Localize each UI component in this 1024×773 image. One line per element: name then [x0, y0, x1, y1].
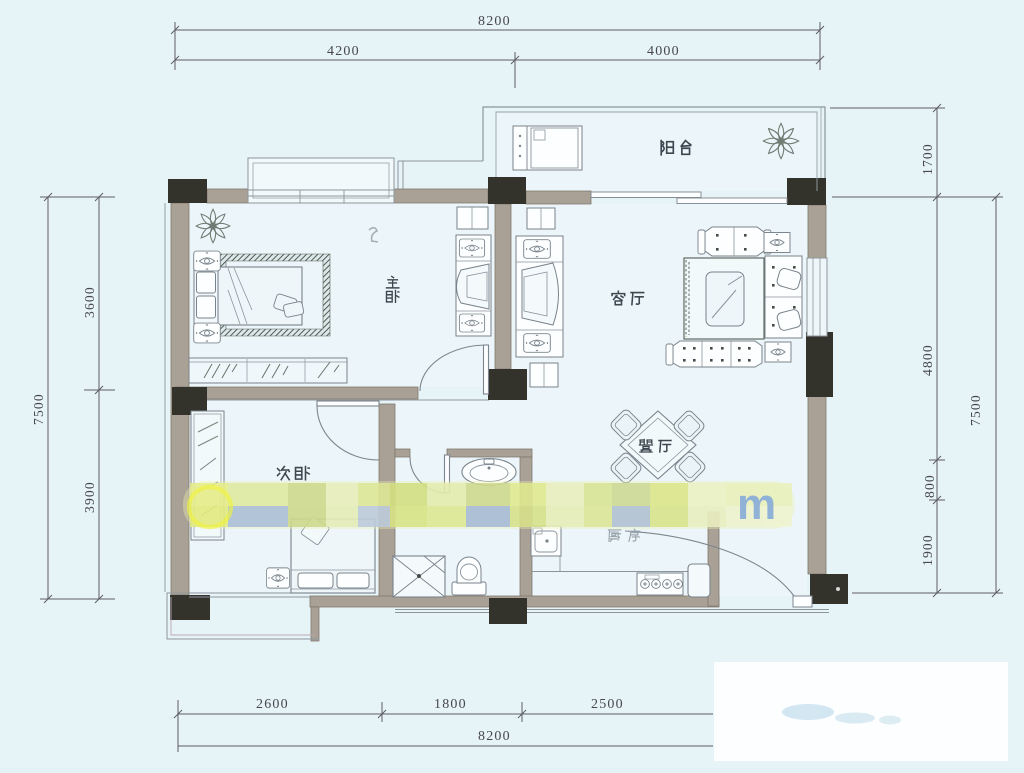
svg-text:4200: 4200	[327, 44, 360, 59]
svg-text:7500: 7500	[31, 393, 46, 425]
svg-text:1900: 1900	[920, 534, 935, 566]
svg-text:4800: 4800	[920, 344, 935, 376]
svg-text:3600: 3600	[82, 286, 97, 318]
svg-text:4000: 4000	[647, 44, 680, 59]
svg-text:8200: 8200	[478, 729, 511, 744]
svg-text:1800: 1800	[434, 697, 467, 712]
svg-text:7500: 7500	[968, 394, 983, 426]
svg-text:2600: 2600	[256, 697, 289, 712]
svg-text:8200: 8200	[478, 14, 511, 29]
svg-text:800: 800	[922, 474, 937, 498]
svg-text:3900: 3900	[82, 481, 97, 513]
svg-text:1700: 1700	[920, 143, 935, 175]
svg-text:m: m	[737, 480, 776, 529]
svg-text:2500: 2500	[591, 697, 624, 712]
